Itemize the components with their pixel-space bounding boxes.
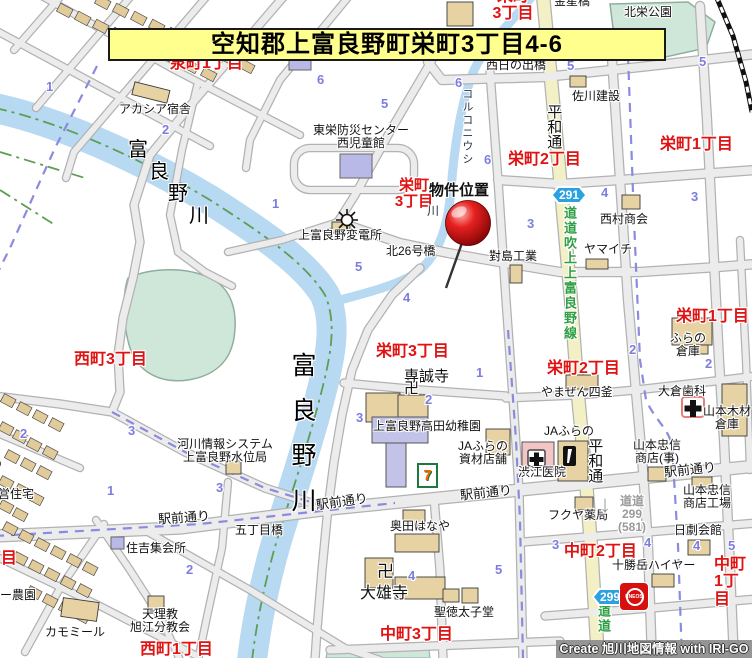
ja-icon <box>563 446 576 466</box>
address-banner: 空知郡上富良野町栄町3丁目4-6 <box>108 28 666 61</box>
property-pin-icon <box>446 201 491 289</box>
road-heiwa-dori-yellow <box>543 0 598 658</box>
map-credit: Create 旭川地図情報 with IRI-GO <box>556 640 752 658</box>
map-canvas <box>0 0 752 658</box>
building-kindergarten <box>372 417 428 443</box>
seven-eleven-icon: 7 <box>417 463 438 488</box>
substation-icon <box>336 209 358 231</box>
eneos-gas-station-icon: ENEOS <box>620 583 648 610</box>
building-sumiyoshi-hall <box>111 537 124 549</box>
hospital-icon-shibue <box>528 450 545 467</box>
building-kindergarten <box>386 443 406 487</box>
route-291-badge: 291 <box>551 186 587 204</box>
map-view[interactable]: 栄町 3丁目泉町1丁目栄町2丁目栄町1丁目栄町 3丁目栄町1丁目栄町2丁目栄町3… <box>0 0 752 658</box>
house-block <box>0 394 98 624</box>
building-jidokan <box>340 154 372 178</box>
park-nishimachi <box>124 270 235 381</box>
road-ekimae-dori <box>0 466 752 536</box>
hospital-icon-okura <box>682 397 704 417</box>
